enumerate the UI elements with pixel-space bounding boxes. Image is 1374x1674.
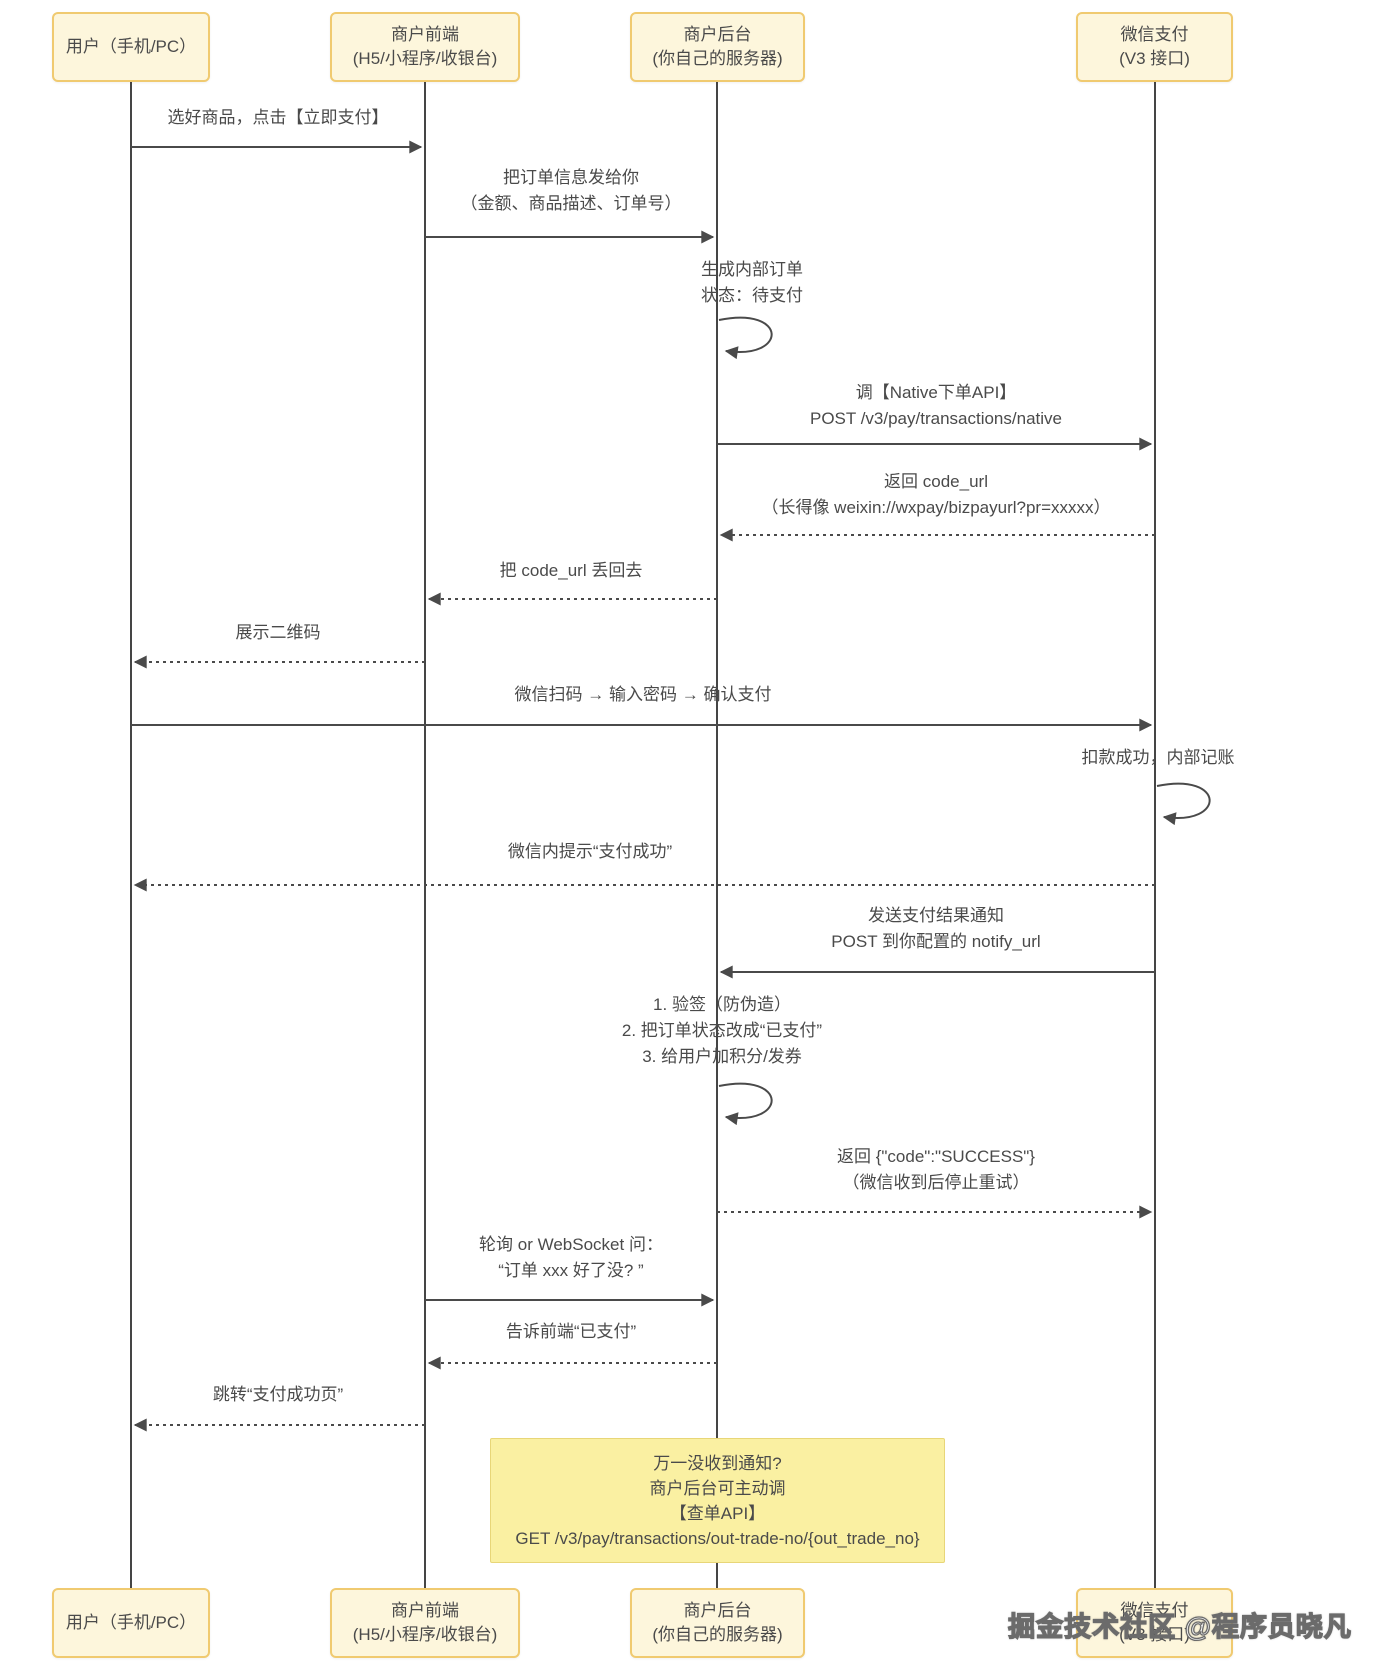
sequence-diagram-canvas: 用户（手机/PC） 商户前端 (H5/小程序/收银台) 商户后台 (你自己的服务… bbox=[0, 0, 1374, 1674]
label-msg-10: 微信内提示“支付成功” bbox=[350, 839, 830, 865]
label-msg-14: 轮询 or WebSocket 问： “订单 xxx 好了没? ” bbox=[331, 1232, 811, 1284]
actor-top-wechat: 微信支付 (V3 接口) bbox=[1076, 12, 1233, 82]
watermark: 掘金技术社区 @程序员晓凡 bbox=[1008, 1605, 1352, 1644]
label-msg-5: 返回 code_url （长得像 weixin://wxpay/bizpayur… bbox=[696, 469, 1176, 521]
diagram-lines-layer bbox=[0, 0, 1374, 1674]
note-query-api: 万一没收到通知? 商户后台可主动调 【查单API】 GET /v3/pay/tr… bbox=[490, 1438, 945, 1563]
label-msg-8: 微信扫码 → 输入密码 → 确认支付 bbox=[403, 682, 883, 708]
label-msg-12: 1. 验签（防伪造） 2. 把订单状态改成“已支付” 3. 给用户加积分/发券 bbox=[482, 992, 962, 1070]
label-msg-2: 把订单信息发给你 （金额、商品描述、订单号） bbox=[331, 165, 811, 217]
label-msg-13: 返回 {"code":"SUCCESS"} （微信收到后停止重试） bbox=[696, 1144, 1176, 1196]
label-msg-7: 展示二维码 bbox=[38, 620, 518, 646]
actor-bottom-frontend: 商户前端 (H5/小程序/收银台) bbox=[330, 1588, 520, 1658]
label-msg-9: 扣款成功，内部记账 bbox=[918, 745, 1374, 771]
label-msg-6: 把 code_url 丢回去 bbox=[331, 558, 811, 584]
self-loop-wechat-debit bbox=[1157, 784, 1210, 818]
actor-bottom-backend: 商户后台 (你自己的服务器) bbox=[630, 1588, 805, 1658]
self-loop-backend-verify bbox=[719, 1084, 772, 1118]
label-msg-3: 生成内部订单 状态：待支付 bbox=[512, 257, 992, 309]
label-msg-1: 选好商品，点击【立即支付】 bbox=[38, 105, 518, 131]
self-loop-backend-create-order bbox=[719, 318, 772, 352]
actor-top-frontend: 商户前端 (H5/小程序/收银台) bbox=[330, 12, 520, 82]
label-msg-11: 发送支付结果通知 POST 到你配置的 notify_url bbox=[696, 903, 1176, 955]
label-msg-15: 告诉前端“已支付” bbox=[331, 1319, 811, 1345]
actor-top-user: 用户（手机/PC） bbox=[52, 12, 210, 82]
actor-top-backend: 商户后台 (你自己的服务器) bbox=[630, 12, 805, 82]
actor-bottom-user: 用户（手机/PC） bbox=[52, 1588, 210, 1658]
label-msg-16: 跳转“支付成功页” bbox=[38, 1382, 518, 1408]
label-msg-4: 调【Native下单API】 POST /v3/pay/transactions… bbox=[696, 380, 1176, 432]
